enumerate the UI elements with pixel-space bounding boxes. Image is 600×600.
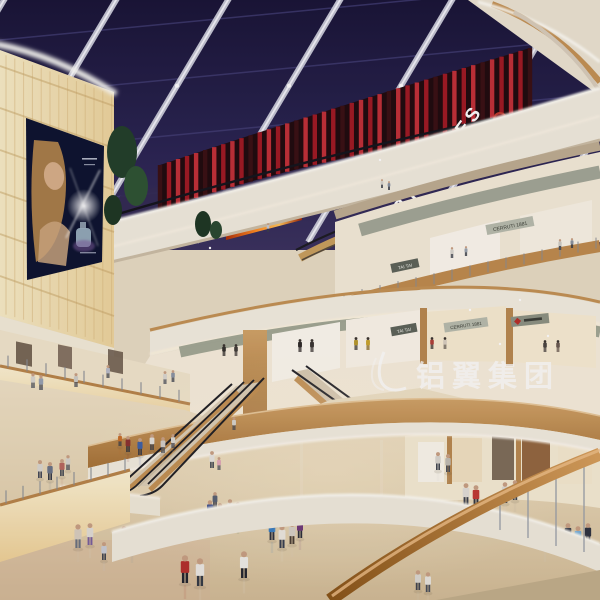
mall-atrium-rendering: THEATRES TAI TAI CERRUTI 1881 [0,0,600,600]
rendering-canvas: THEATRES TAI TAI CERRUTI 1881 [0,0,600,600]
vignette [0,0,600,600]
